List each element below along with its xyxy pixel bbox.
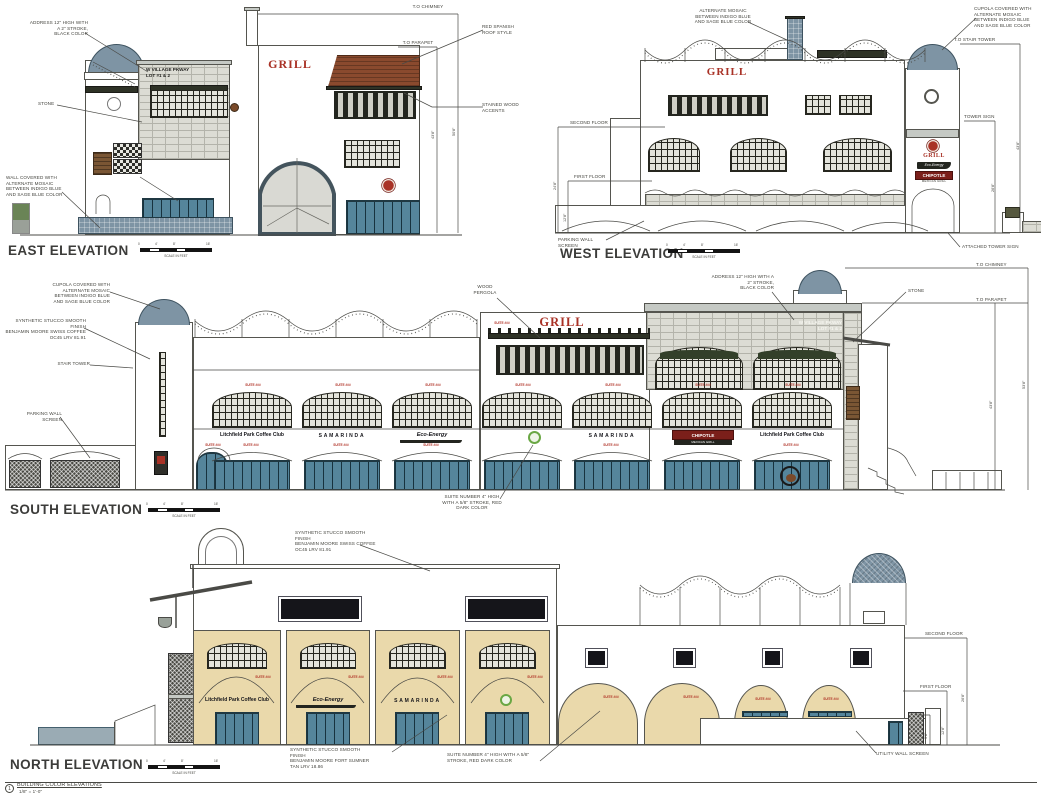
footer-divider — [5, 782, 1037, 783]
sheet-note-scale: 1/8" = 1'-0" — [19, 789, 89, 794]
drawing-sheet: W VILLAGE PKWAY LOT #1 & 2 GRILL ADDRESS… — [0, 0, 1041, 794]
west-elevation: GRILL GRILL Eco-Energy CHIPOTLE MEXICAN … — [540, 0, 1041, 264]
west-lines — [555, 18, 1020, 247]
east-elevation: W VILLAGE PKWAY LOT #1 & 2 GRILL ADDRESS… — [0, 0, 540, 264]
north-lines — [30, 545, 1000, 761]
east-lines — [20, 14, 483, 235]
sheet-note-title: BUILDING COLOR ELEVATIONS — [17, 782, 157, 789]
west-linework — [540, 0, 1041, 264]
north-elevation: Litchfield Park Coffee Club Eco-Energy S… — [0, 525, 1041, 790]
south-linework — [0, 262, 1041, 530]
south-lines — [5, 268, 1028, 499]
detail-number-bubble: 1 — [5, 784, 14, 793]
north-linework — [0, 525, 1041, 790]
east-linework — [0, 0, 540, 264]
south-elevation: GRILL W VILLAGE PKWAY LOT #1 & 2 SUITE #… — [0, 262, 1041, 530]
